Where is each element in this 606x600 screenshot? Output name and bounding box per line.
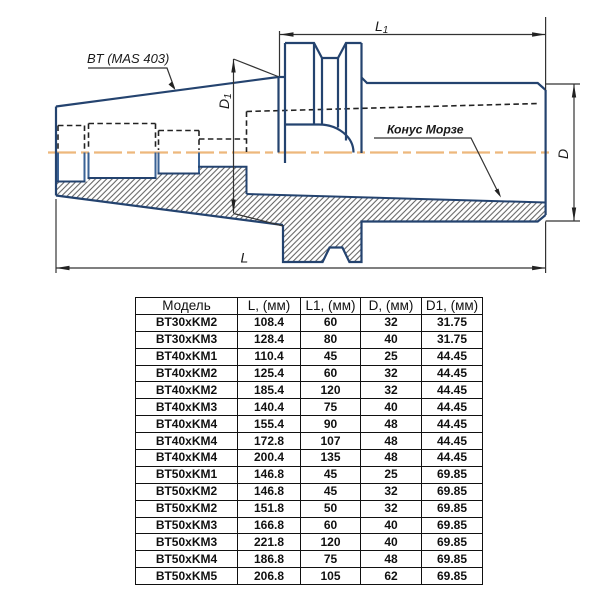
svg-text:L1: L1 [375, 18, 388, 36]
svg-text:D1: D1 [216, 93, 234, 109]
svg-text:D: D [555, 149, 571, 159]
svg-text:Конус Морзе: Конус Морзе [387, 123, 464, 137]
svg-text:BT (MAS 403): BT (MAS 403) [87, 51, 169, 66]
svg-text:L: L [241, 250, 249, 266]
